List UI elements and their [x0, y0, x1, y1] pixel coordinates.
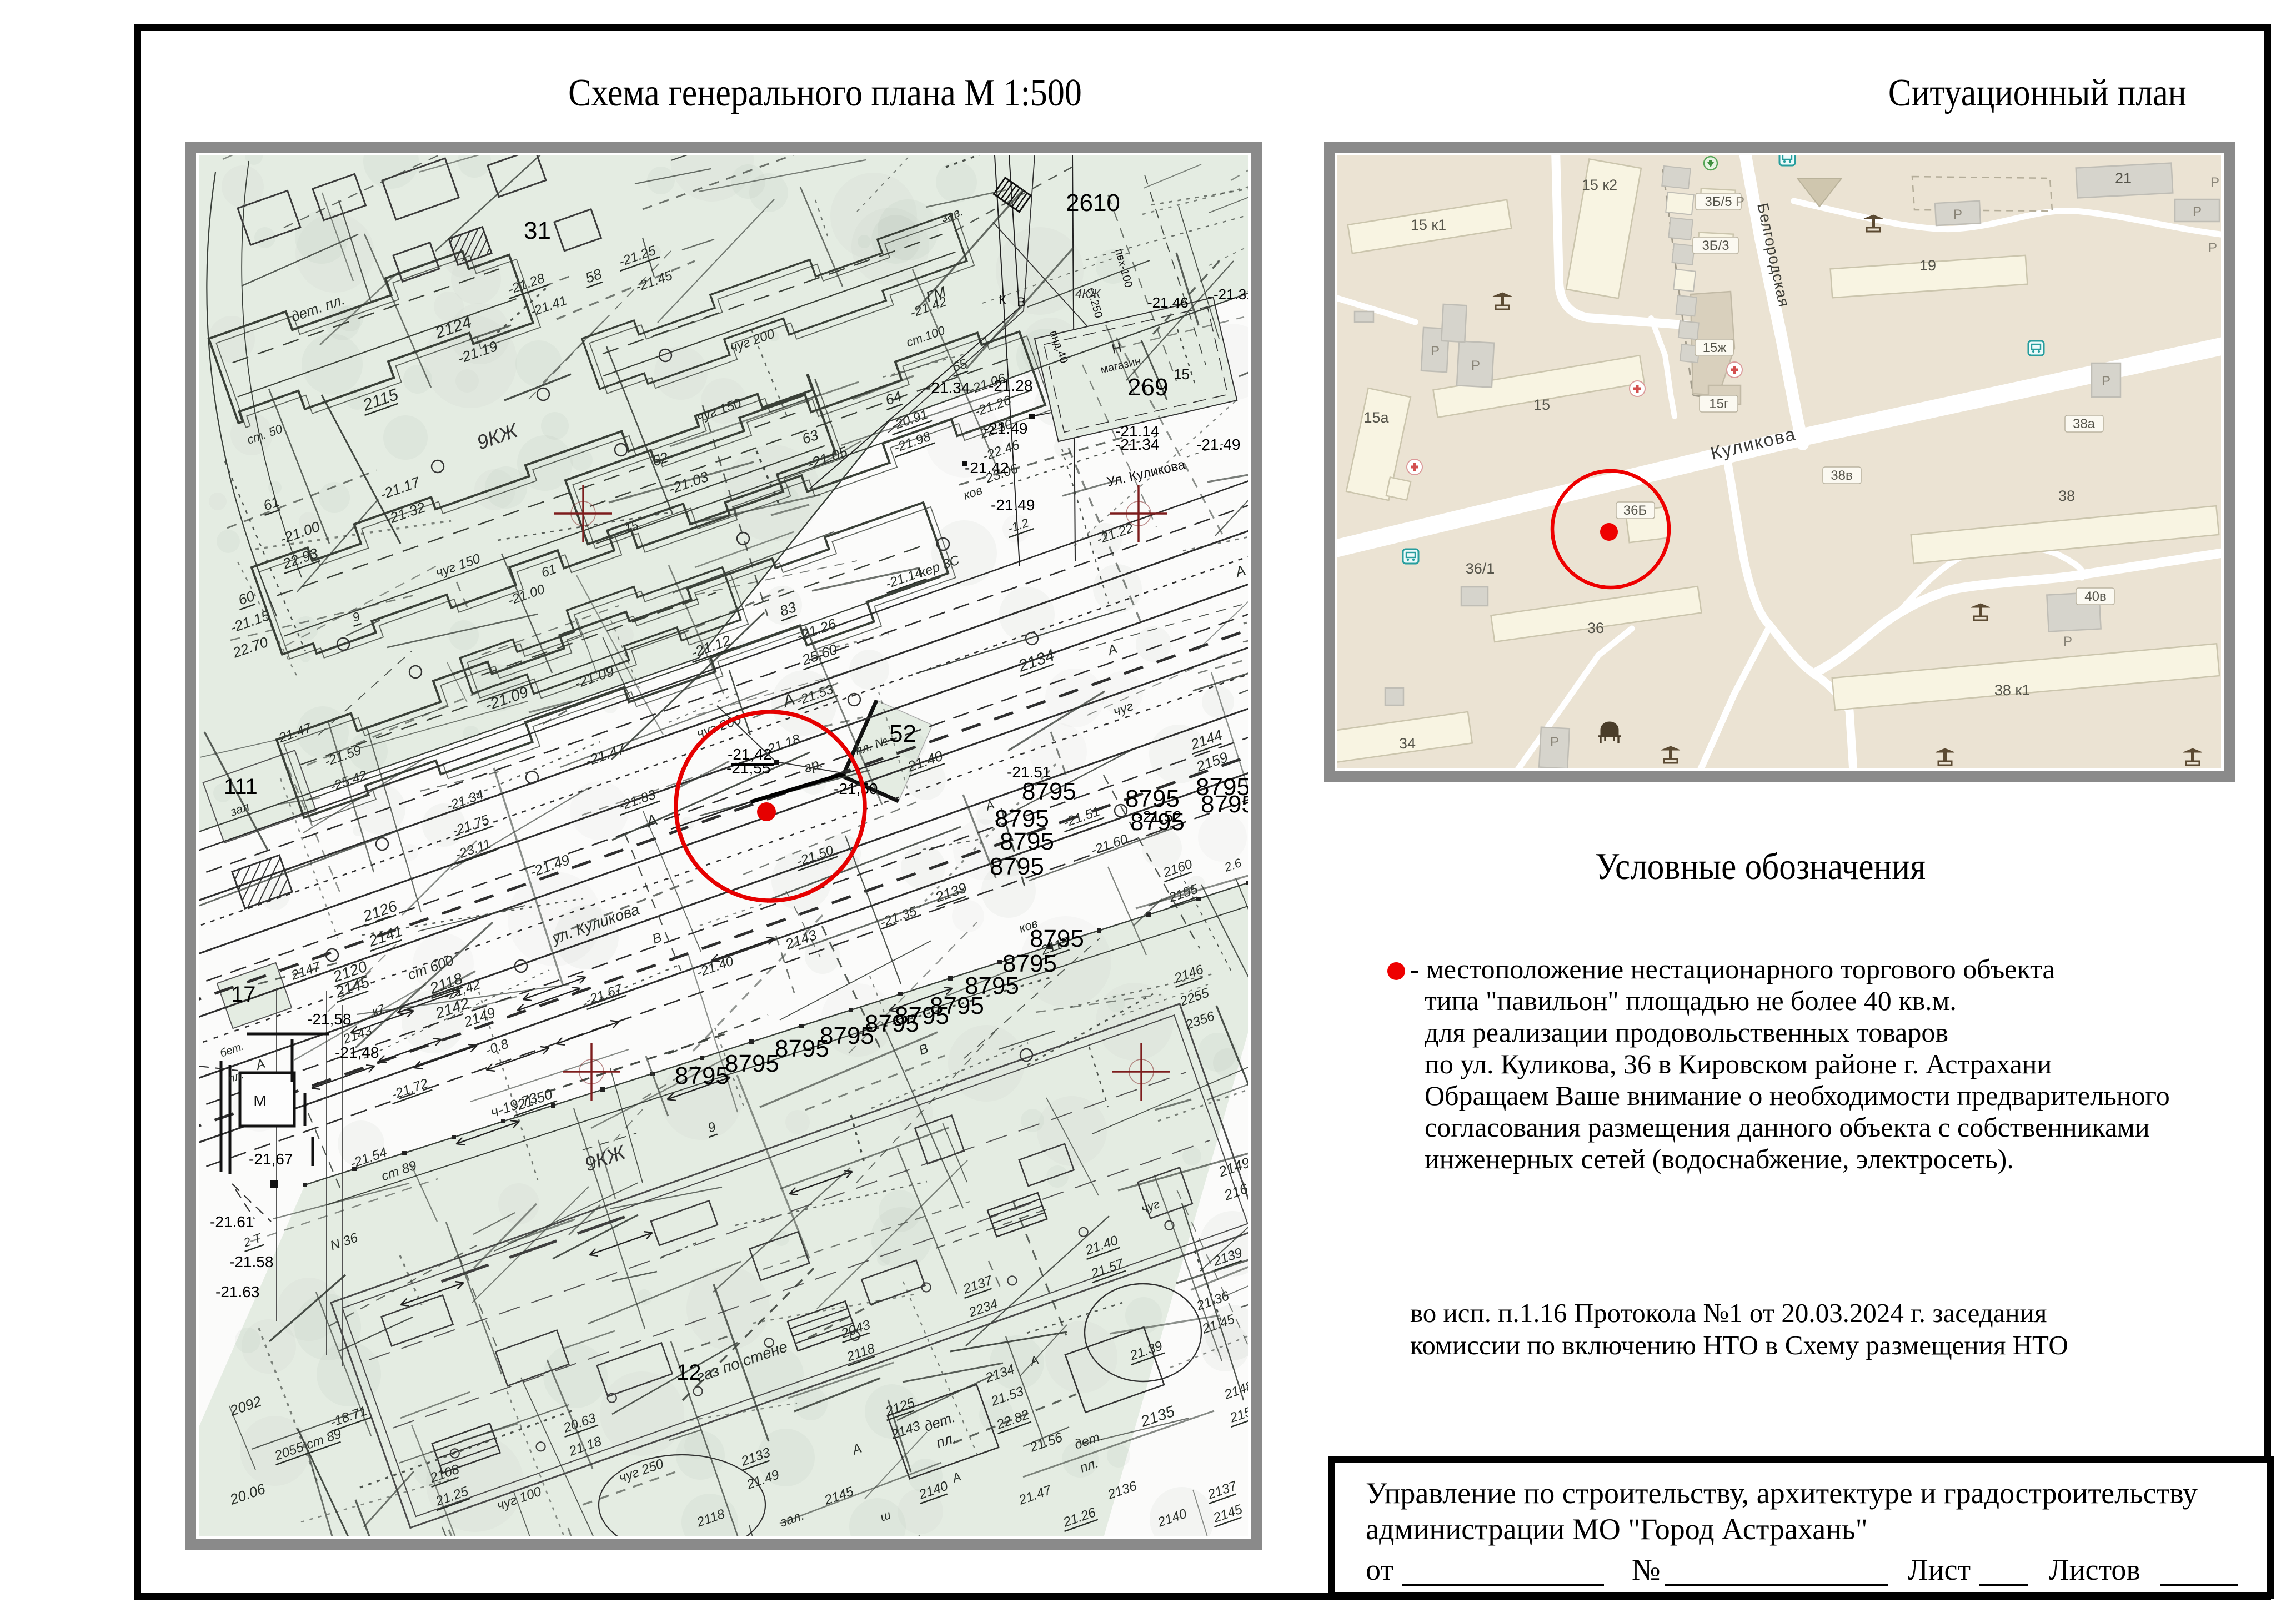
svg-text:-21.49: -21.49: [991, 496, 1035, 514]
svg-text:-21,67: -21,67: [249, 1150, 293, 1168]
svg-text:52: 52: [889, 720, 916, 747]
svg-text:111: 111: [224, 775, 258, 799]
svg-text:-21.42: -21.42: [965, 459, 1009, 476]
svg-text:-21,58: -21,58: [307, 1011, 351, 1028]
svg-text:-21.58: -21.58: [229, 1253, 273, 1270]
svg-text:38в: 38в: [1831, 468, 1852, 483]
svg-text:38: 38: [2058, 488, 2075, 504]
svg-text:21: 21: [2115, 170, 2132, 187]
svg-text:-21.46: -21.46: [1147, 294, 1189, 311]
svg-text:15: 15: [1533, 396, 1550, 413]
svg-text:8795: 8795: [995, 805, 1049, 832]
svg-text:36: 36: [1587, 620, 1604, 636]
svg-text:15г: 15г: [1709, 396, 1729, 411]
svg-text:Р: Р: [1471, 358, 1480, 373]
svg-text:-21,55: -21,55: [726, 760, 770, 777]
svg-text:38 к1: 38 к1: [1994, 682, 2030, 699]
svg-text:3Б/3: 3Б/3: [1702, 238, 1729, 253]
svg-text:-21.49: -21.49: [1196, 436, 1240, 453]
svg-text:-21.63: -21.63: [215, 1283, 259, 1300]
svg-text:36/1: 36/1: [1466, 560, 1495, 577]
svg-text:38а: 38а: [2073, 416, 2096, 431]
svg-text:8795: 8795: [1030, 925, 1084, 952]
svg-text:15: 15: [1174, 366, 1190, 383]
svg-text:2610: 2610: [1066, 189, 1120, 217]
svg-text:34: 34: [1399, 735, 1416, 752]
svg-text:8795: 8795: [990, 853, 1044, 880]
svg-text:15ж: 15ж: [1703, 340, 1727, 355]
svg-text:Р: Р: [2210, 175, 2219, 190]
svg-text:17: 17: [231, 982, 256, 1007]
svg-text:-21,50: -21,50: [834, 780, 878, 797]
svg-text:К: К: [999, 293, 1006, 308]
svg-text:31: 31: [524, 217, 551, 244]
svg-text:Р: Р: [2208, 240, 2217, 255]
svg-text:36Б: 36Б: [1623, 503, 1647, 518]
svg-text:Р: Р: [1431, 344, 1440, 359]
svg-text:Р: Р: [1953, 207, 1962, 222]
svg-text:15 к2: 15 к2: [1582, 177, 1617, 193]
svg-text:15 к1: 15 к1: [1411, 217, 1446, 233]
svg-text:Р: Р: [1736, 194, 1744, 209]
svg-text:8795: 8795: [1130, 808, 1185, 836]
svg-text:-21.28: -21.28: [989, 377, 1032, 394]
svg-text:12: 12: [676, 1360, 701, 1385]
svg-text:-21.34: -21.34: [1115, 436, 1159, 453]
svg-text:-21.34: -21.34: [926, 379, 970, 396]
svg-text:8795: 8795: [675, 1062, 729, 1089]
svg-text:8795: 8795: [1196, 773, 1248, 801]
svg-text:8795: 8795: [725, 1050, 779, 1077]
svg-text:40в: 40в: [2084, 589, 2106, 604]
svg-text:-21,48: -21,48: [335, 1044, 379, 1061]
svg-text:19: 19: [1919, 257, 1936, 274]
svg-text:-21.31: -21.31: [1214, 286, 1248, 303]
svg-text:Р: Р: [2102, 374, 2110, 389]
svg-text:8795: 8795: [1002, 950, 1057, 977]
svg-text:269: 269: [1127, 374, 1168, 401]
svg-text:Р: Р: [1550, 735, 1559, 750]
svg-text:8795: 8795: [1022, 778, 1076, 805]
svg-text:М: М: [253, 1092, 266, 1109]
svg-text:15а: 15а: [1363, 409, 1389, 426]
svg-text:4КЖ: 4КЖ: [1075, 287, 1101, 300]
svg-text:Р: Р: [2193, 204, 2202, 219]
svg-text:-21.61: -21.61: [210, 1213, 254, 1230]
svg-text:Р: Р: [2063, 634, 2072, 649]
svg-text:3Б/5: 3Б/5: [1705, 194, 1732, 209]
svg-text:В: В: [1017, 295, 1026, 310]
svg-text:-21.49: -21.49: [984, 420, 1027, 437]
